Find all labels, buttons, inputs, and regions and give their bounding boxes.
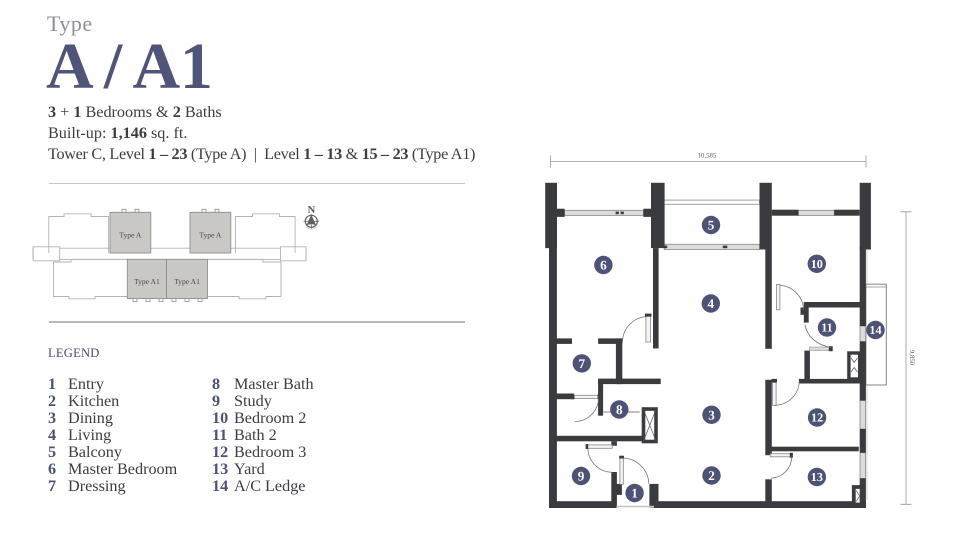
svg-text:11: 11: [821, 321, 833, 335]
svg-text:9: 9: [578, 469, 585, 484]
svg-text:5: 5: [708, 218, 715, 233]
svg-text:9,850: 9,850: [908, 350, 915, 366]
svg-text:10: 10: [811, 257, 823, 271]
svg-text:Type A: Type A: [119, 231, 142, 240]
svg-text:6: 6: [600, 258, 607, 273]
svg-text:13: 13: [811, 470, 823, 484]
svg-text:14: 14: [869, 323, 881, 337]
svg-text:Type A1: Type A1: [134, 277, 160, 286]
svg-text:Type A: Type A: [199, 231, 222, 240]
svg-text:1: 1: [631, 486, 638, 501]
svg-text:Type A1: Type A1: [174, 277, 200, 286]
svg-text:12: 12: [811, 411, 823, 425]
svg-text:4: 4: [708, 296, 715, 311]
svg-text:8: 8: [616, 402, 623, 417]
svg-text:2: 2: [708, 468, 715, 483]
svg-text:10,585: 10,585: [698, 153, 717, 160]
svg-text:7: 7: [579, 356, 586, 371]
svg-text:3: 3: [708, 407, 715, 422]
